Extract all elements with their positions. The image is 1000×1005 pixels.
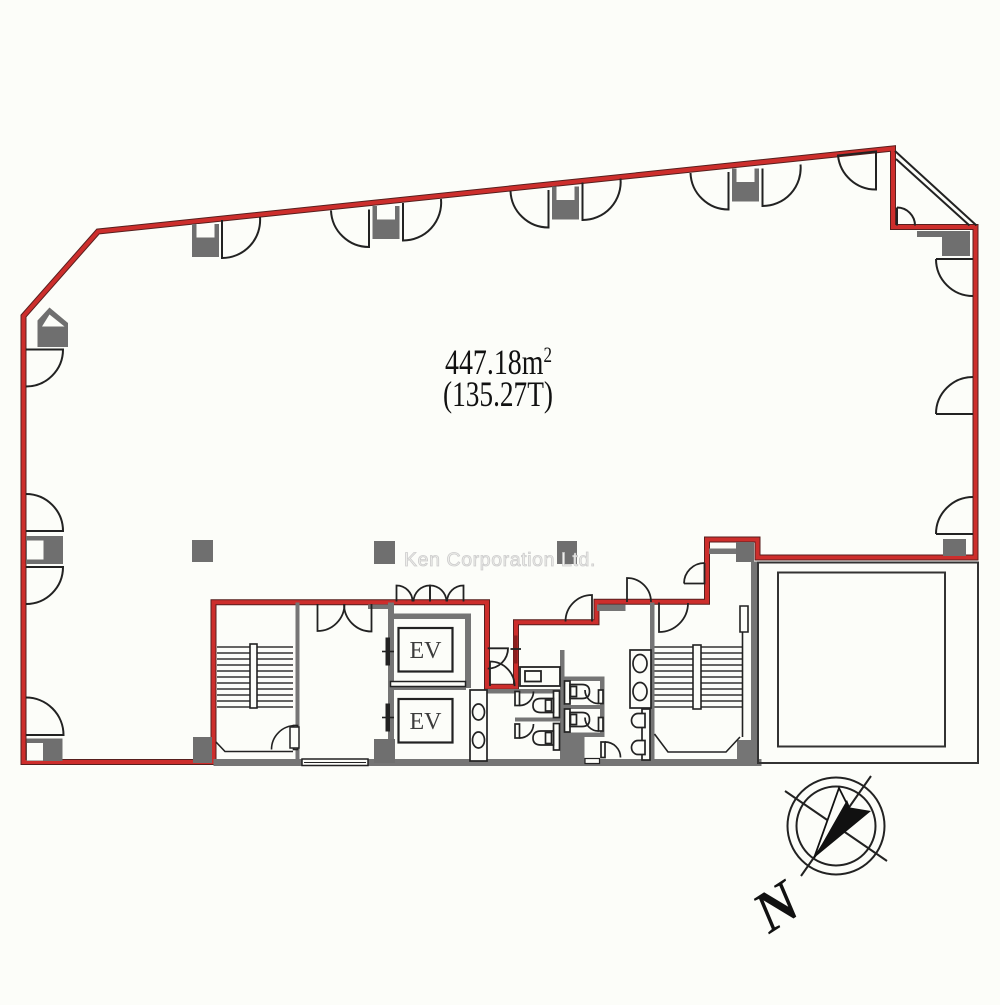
svg-text:EV: EV	[410, 709, 443, 735]
svg-text:Ken Corporation Ltd.: Ken Corporation Ltd.	[404, 549, 596, 571]
svg-text:(135.27T): (135.27T)	[443, 374, 553, 414]
svg-text:EV: EV	[410, 638, 443, 664]
